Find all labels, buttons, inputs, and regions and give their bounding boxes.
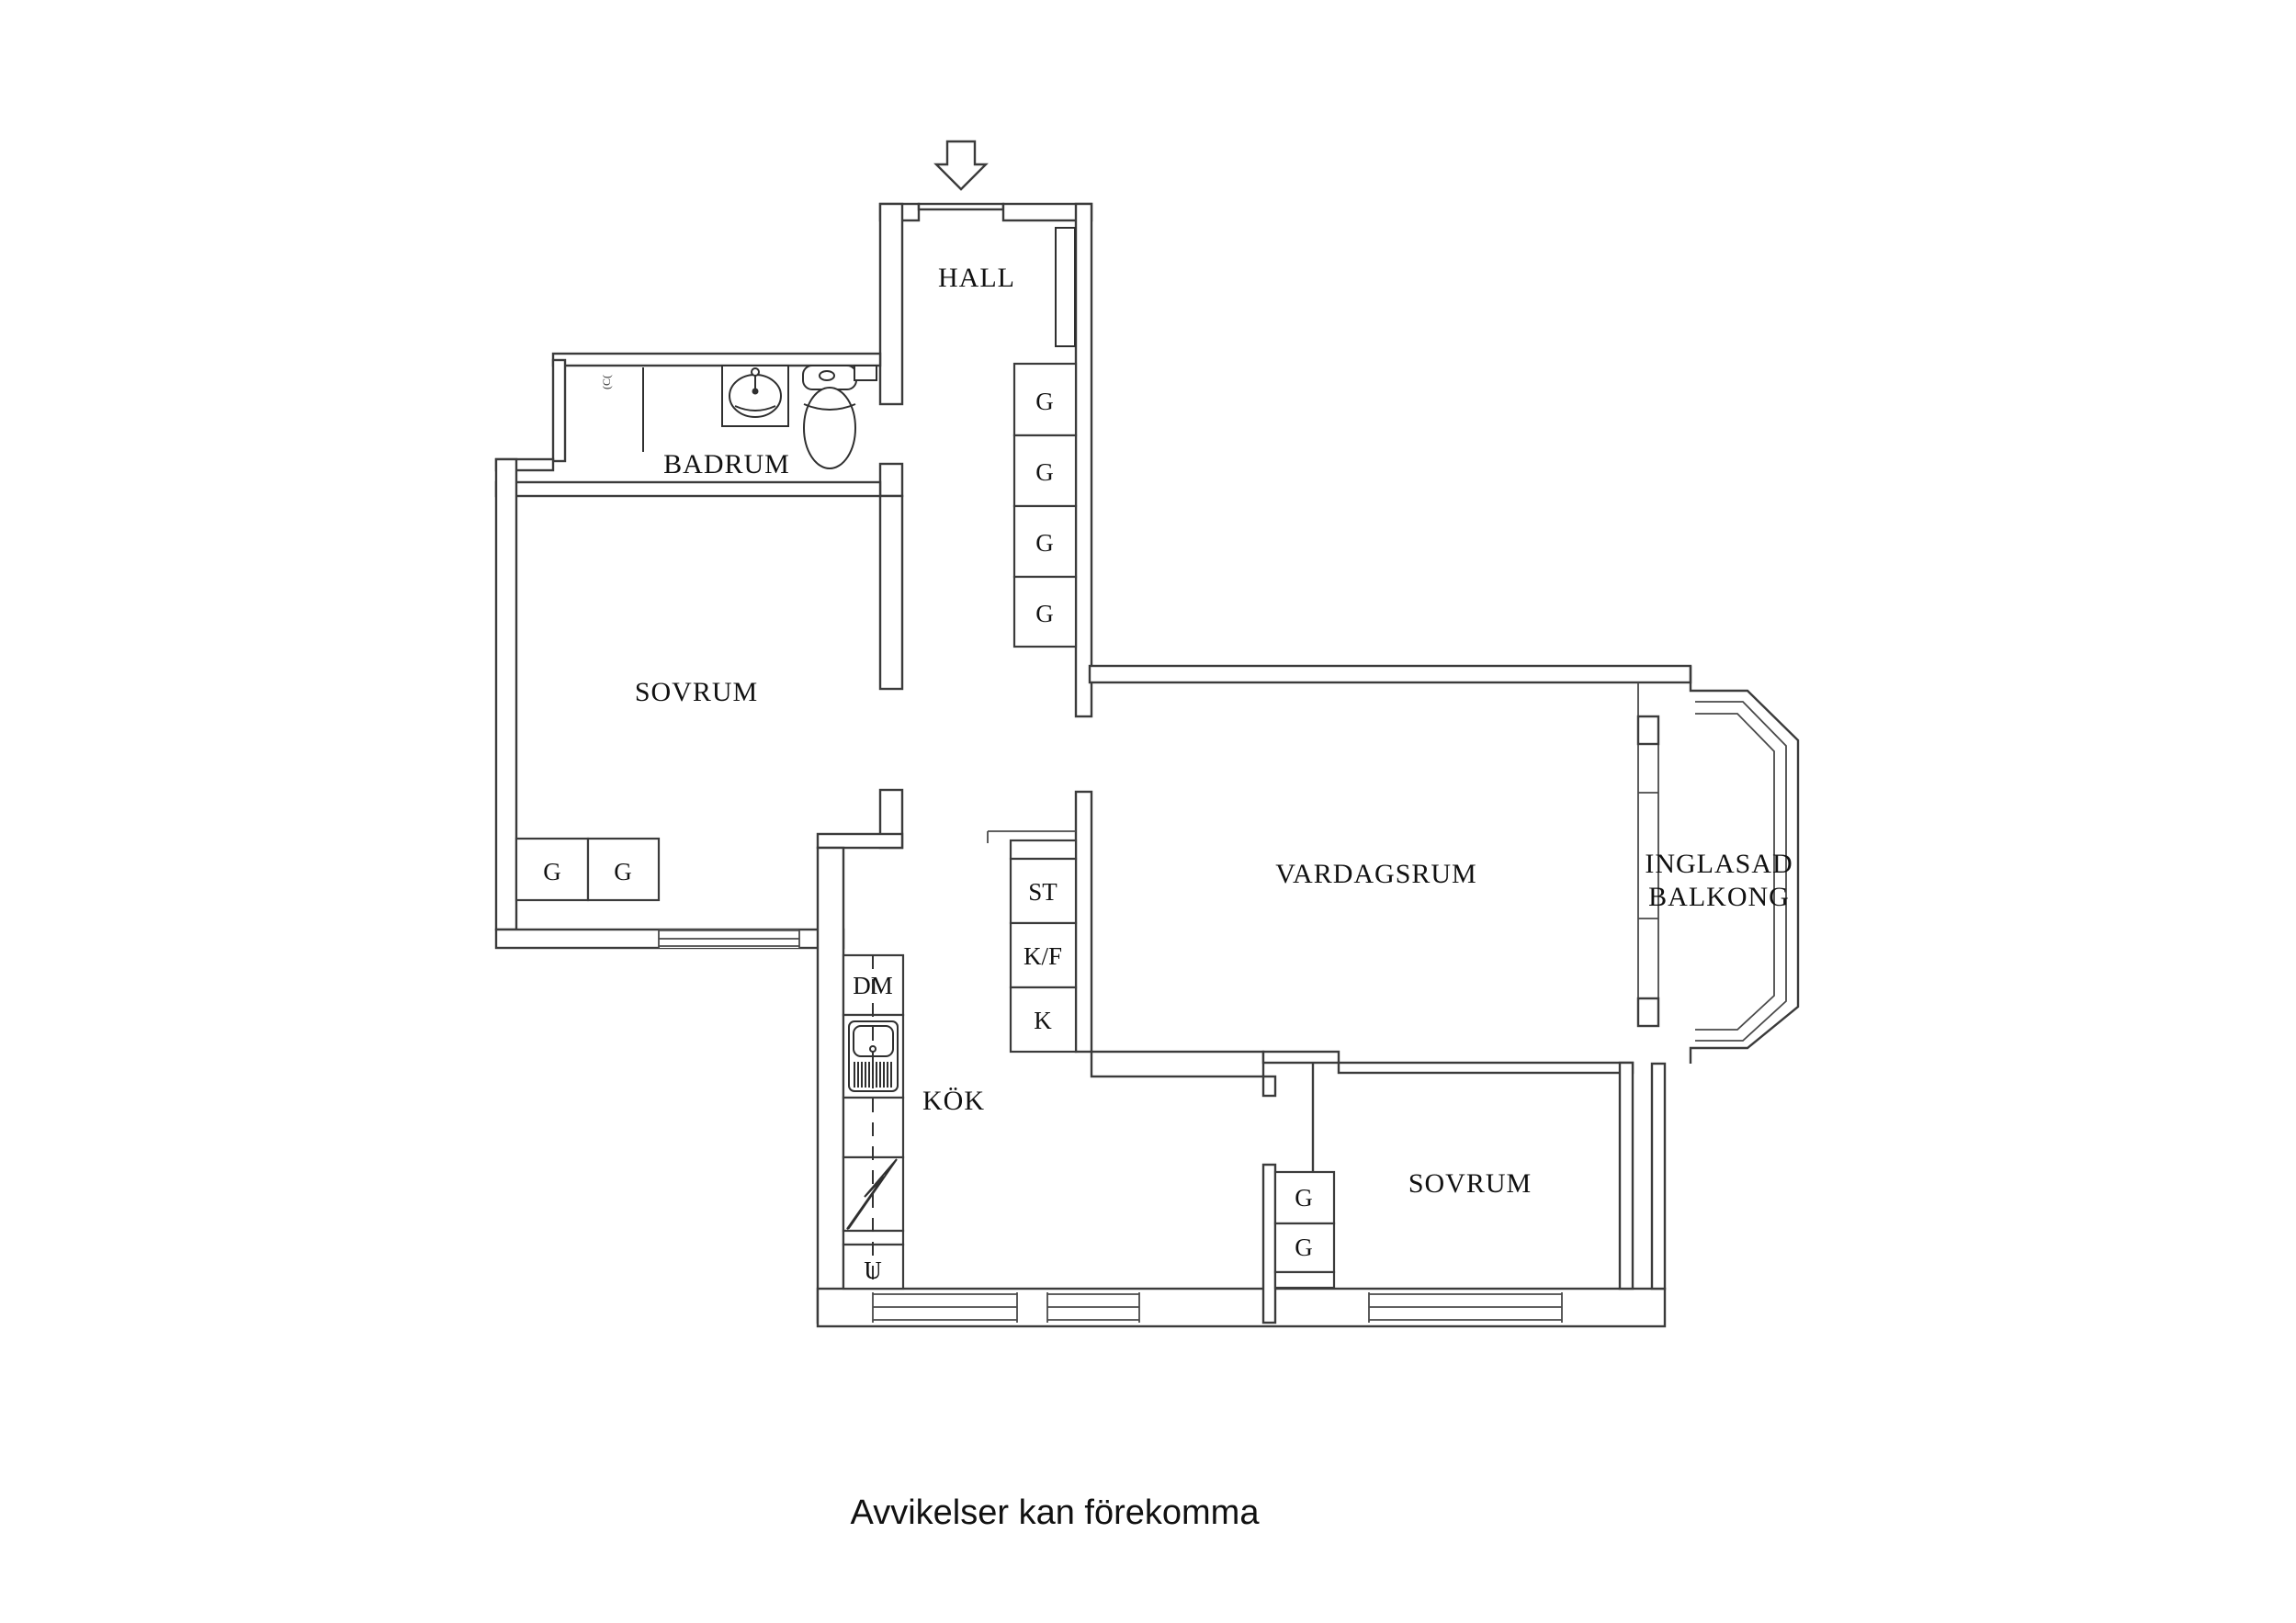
entrance-threshold [919, 204, 1003, 209]
room-label-bathroom: BADRUM [663, 449, 790, 479]
bathroom-mark: (C( [600, 375, 613, 389]
toilet-button [820, 371, 834, 380]
windows [659, 930, 1562, 1323]
closet-label: G [1035, 529, 1054, 557]
cabinet-strip [1011, 840, 1076, 859]
wall [880, 204, 902, 404]
wall [553, 360, 565, 461]
wall [1339, 1063, 1633, 1073]
closet-strip [1275, 1272, 1334, 1288]
cabinet-label: K [1034, 1007, 1052, 1034]
wall [496, 459, 516, 930]
cabinet-label: K/F [1024, 942, 1062, 970]
wall [880, 464, 902, 496]
room-label-balcony-1: INGLASAD [1645, 849, 1793, 879]
entry-door-leaf [1056, 228, 1075, 346]
wall [1091, 1052, 1263, 1076]
closet-label: G [1295, 1234, 1313, 1261]
wall [1090, 666, 1691, 682]
room-label-hall: HALL [938, 263, 1015, 293]
closet-label: G [1295, 1184, 1313, 1212]
disclaimer-note: Avvikelser kan förekomma [851, 1493, 1261, 1532]
room-label-bedroom1: SOVRUM [635, 677, 758, 707]
toilet-bowl [804, 388, 855, 468]
wall [818, 834, 902, 848]
balcony-window-wall [1638, 682, 1658, 716]
bathroom-shelf [854, 366, 877, 380]
bedroom1-wardrobes: G G [516, 839, 659, 900]
room-label-kitchen: KÖK [922, 1086, 985, 1116]
washbasin-faucet [752, 368, 759, 376]
wall [496, 482, 880, 496]
room-label-living: VARDAGSRUM [1275, 859, 1477, 889]
u-label: U [864, 1257, 882, 1284]
washbasin-drain [752, 389, 759, 395]
hall-wardrobes: G G G G [1014, 364, 1076, 647]
wall [1076, 792, 1091, 1052]
room-label-bedroom2: SOVRUM [1408, 1168, 1532, 1199]
wall [1076, 204, 1091, 716]
wall [1263, 1052, 1339, 1063]
kitchen-tall-units: ST K/F K [988, 831, 1076, 1052]
closet-label: G [1035, 388, 1054, 415]
window-stub [1638, 998, 1658, 1026]
wall [818, 848, 843, 1323]
bedroom2-wardrobes: G G [1275, 1172, 1334, 1288]
wall [1263, 1165, 1275, 1323]
floor-plan: G G G G G G G G ST K/F K [0, 0, 2296, 1623]
closet-label: G [1035, 600, 1054, 627]
closet-label: G [1035, 458, 1054, 486]
wall [1263, 1076, 1275, 1096]
window-stub [1638, 716, 1658, 744]
kitchen-counter: DM U [843, 955, 903, 1289]
closet-label: G [614, 858, 632, 885]
wall [1620, 1063, 1633, 1289]
wall [880, 496, 902, 689]
room-label-balcony-2: BALKONG [1648, 882, 1790, 912]
closet-label: G [543, 858, 561, 885]
dishwasher-label: DM [853, 972, 893, 999]
cabinet-label: ST [1028, 878, 1058, 906]
wall [1652, 1064, 1665, 1289]
wall [553, 354, 880, 366]
entrance-arrow-icon [936, 141, 986, 189]
